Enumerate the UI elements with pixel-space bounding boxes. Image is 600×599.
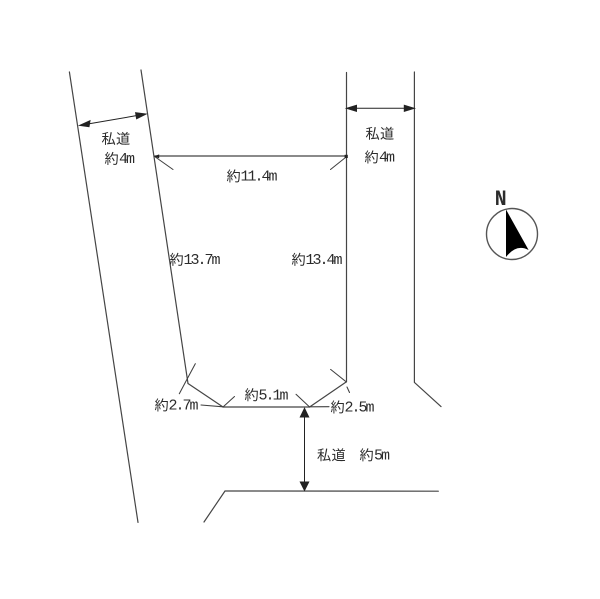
svg-text:4m: 4m (119, 151, 135, 168)
svg-text:4m: 4m (379, 150, 395, 167)
svg-text:2.7m: 2.7m (169, 398, 199, 415)
svg-text:N: N (495, 188, 507, 212)
svg-text:5m: 5m (374, 448, 390, 465)
svg-text:13.7m: 13.7m (184, 252, 221, 269)
svg-text:5.1m: 5.1m (259, 387, 289, 404)
svg-text:11.4m: 11.4m (241, 169, 278, 186)
svg-text:2.5m: 2.5m (345, 400, 375, 417)
svg-text:13.4m: 13.4m (306, 252, 343, 269)
